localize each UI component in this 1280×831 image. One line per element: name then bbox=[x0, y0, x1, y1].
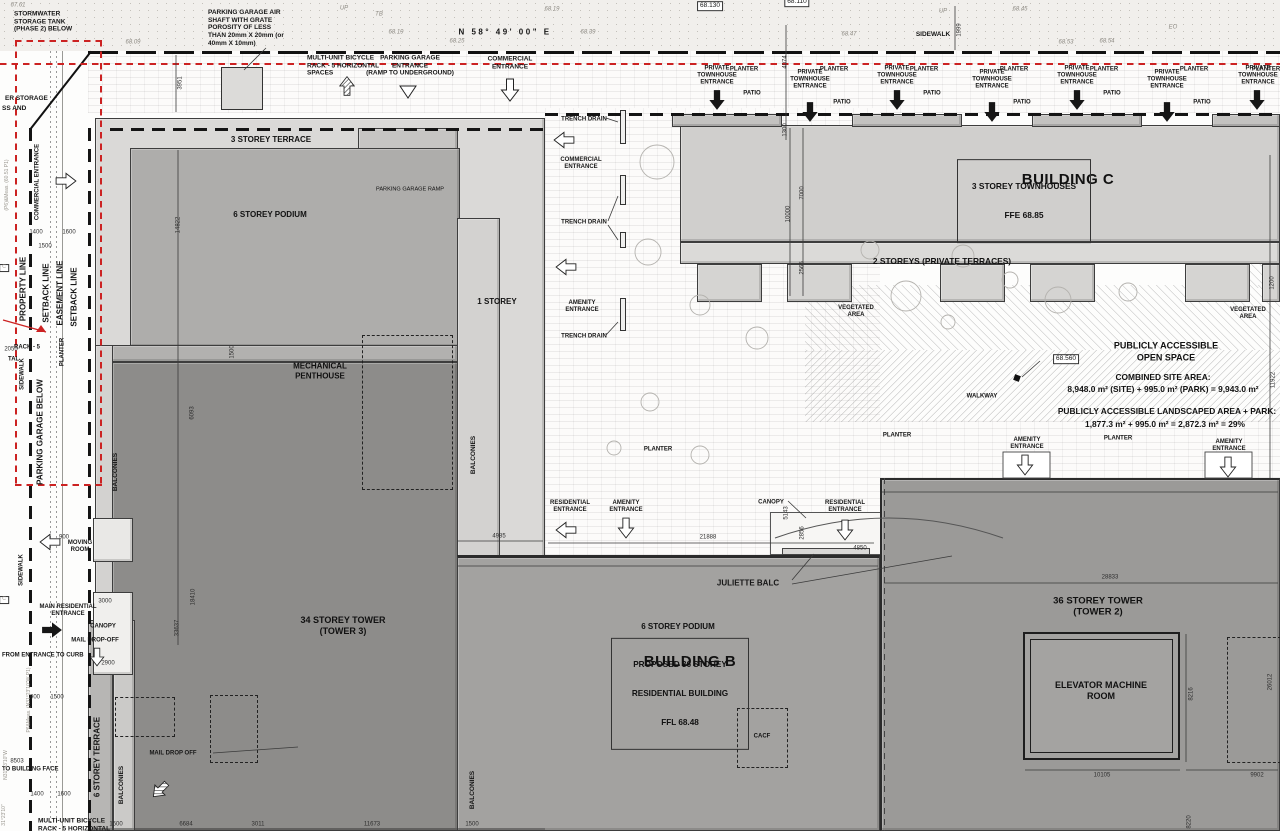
amenity-entrance-label: AMENITY ENTRANCE bbox=[565, 300, 598, 314]
text-fragment: RACK - 5 bbox=[14, 344, 40, 351]
site-plan-drawing: 3 STOREY TERRACE 6 STOREY PODIUM PARKING… bbox=[0, 0, 1280, 831]
boxed-letter: C bbox=[0, 264, 9, 272]
elevation-box: 68.130 bbox=[697, 1, 723, 11]
open-space-line4: 8,948.0 m² (SITE) + 995.0 m² (PARK) = 9,… bbox=[1067, 384, 1258, 394]
open-space-line3: COMBINED SITE AREA: bbox=[1115, 372, 1210, 382]
dim: 1600 bbox=[62, 229, 75, 236]
spot-elevation: 68.25 bbox=[449, 38, 464, 45]
trench-drain-label: TRENCH DRAIN bbox=[561, 219, 607, 226]
residential-entrance-label: RESIDENTIAL ENTRANCE bbox=[550, 500, 590, 514]
main-residential-entrance-label: MAIN RESIDENTIAL ENTRANCE bbox=[40, 604, 97, 618]
planter-label: PLANTER bbox=[820, 66, 848, 73]
spot-elevation: 68.54 bbox=[1099, 38, 1114, 45]
dim: 1400 bbox=[29, 229, 42, 236]
dim: 1500 bbox=[229, 345, 236, 358]
planter-label: PLANTER bbox=[59, 338, 66, 366]
dim: 1400 bbox=[30, 791, 43, 798]
dim: 33637 bbox=[174, 620, 181, 637]
balconies-label: BALCONIES bbox=[470, 436, 478, 474]
tb-label: TB bbox=[375, 11, 383, 18]
dim: 1600 bbox=[57, 791, 70, 798]
planter-label: PLANTER bbox=[730, 66, 758, 73]
garage-entrance-label: PARKING GARAGE ENTRANCE (RAMP TO UNDERGR… bbox=[366, 55, 454, 78]
planter-label: PLANTER bbox=[1000, 66, 1028, 73]
bike-rack-note-bottom: MULTI-UNIT BICYCLE RACK - 5 HORIZONTAL bbox=[38, 817, 110, 831]
building-b-line3: FFL 68.48 bbox=[617, 718, 743, 728]
dim: 3951 bbox=[177, 76, 184, 89]
dim: 1200 bbox=[1269, 276, 1276, 289]
spot-elevation: 68.19 bbox=[544, 6, 559, 13]
mail-drop-off-label: MAIL DROP OFF bbox=[149, 750, 196, 757]
dim: 11922 bbox=[1270, 372, 1277, 388]
trench-drain-label: TRENCH DRAIN bbox=[561, 333, 607, 340]
dim: 5143 bbox=[783, 506, 790, 519]
survey-fragment: P6&Meas. (N31°23'10"W P1) bbox=[27, 667, 33, 732]
tower2-label: 36 STOREY TOWER (TOWER 2) bbox=[1053, 596, 1143, 619]
elevation-box: 68.110 bbox=[784, 0, 809, 7]
text-fragment: SS AND bbox=[2, 105, 26, 113]
sidewalk-label: SIDEWALK bbox=[18, 554, 25, 586]
building-c-band-label: 2 STOREYS (PRIVATE TERRACES) bbox=[873, 256, 1011, 266]
open-space-line6: 1,877.3 m² + 995.0 m² = 2,872.3 m² = 29% bbox=[1085, 419, 1245, 429]
planter-label: PLANTER bbox=[1104, 435, 1132, 442]
building-b-line1: PROPOSED 36 STOREY bbox=[617, 660, 743, 670]
spot-elevation: 68.39 bbox=[580, 29, 595, 36]
spot-elevation: 67.61 bbox=[10, 2, 25, 9]
balconies-label: BALCONIES bbox=[469, 771, 477, 809]
survey-fragment: (P6)&Meas. (60.51 P1) bbox=[5, 159, 11, 210]
dim: 2565 bbox=[799, 261, 806, 274]
spot-elevation: 68.53 bbox=[1058, 39, 1073, 46]
dim: 1500 bbox=[109, 821, 122, 828]
dim: 7000 bbox=[799, 186, 806, 199]
cacf-label: CACF bbox=[754, 733, 771, 740]
penthouse-label: MECHANICAL PENTHOUSE bbox=[293, 361, 347, 380]
survey-fragment: N31°23'10"W bbox=[4, 750, 10, 780]
patio-label: PATIO bbox=[833, 99, 850, 106]
dim: 9902 bbox=[1250, 772, 1263, 779]
walkway-label: WALKWAY bbox=[967, 393, 998, 400]
patio-label: PATIO bbox=[1193, 99, 1210, 106]
terrace3-label: 3 STOREY TERRACE bbox=[231, 135, 311, 145]
dim: 8220 bbox=[1186, 815, 1193, 828]
amenity-entrance-label: AMENITY ENTRANCE bbox=[1010, 437, 1043, 451]
open-space-line5: PUBLICLY ACCESSIBLE LANDSCAPED AREA + PA… bbox=[1058, 406, 1276, 416]
planter-label: PLANTER bbox=[1252, 66, 1280, 73]
patio-label: PATIO bbox=[743, 90, 760, 97]
entrance-to-curb-label: FROM ENTRANCE TO CURB bbox=[2, 652, 84, 659]
easement-line-label: EASEMENT LINE bbox=[55, 261, 64, 326]
dim: 10105 bbox=[1094, 772, 1111, 779]
sidewalk-label: SIDEWALK bbox=[19, 358, 26, 390]
property-line-label: PROPERTY LINE bbox=[18, 257, 27, 321]
dim: 4850 bbox=[853, 545, 866, 552]
commercial-entrance-label: COMMERCIAL ENTRANCE bbox=[488, 55, 533, 70]
terrace6-label: 6 STOREY TERRACE bbox=[92, 717, 101, 797]
spot-elevation: 68.45 bbox=[1012, 6, 1027, 13]
spot-elevation: 68.47 bbox=[841, 31, 856, 38]
planter-label: PLANTER bbox=[910, 66, 938, 73]
patio-label: PATIO bbox=[1013, 99, 1030, 106]
vegetated-area-label: VEGETATED AREA bbox=[838, 305, 874, 319]
planter-label: PLANTER bbox=[644, 446, 672, 453]
building-c-info-box: 3 STOREY TOWNHOUSES FFE 68.85 bbox=[957, 159, 1091, 243]
planter-label: PLANTER bbox=[1180, 66, 1208, 73]
dim: 1500 bbox=[38, 243, 51, 250]
residential-entrance-label: RESIDENTIAL ENTRANCE bbox=[825, 500, 865, 514]
tower3-label: 34 STOREY TOWER (TOWER 3) bbox=[300, 615, 385, 637]
survey-fragment: 31°23'10" bbox=[2, 804, 8, 825]
patio-label: PATIO bbox=[1103, 90, 1120, 97]
dim: 2900 bbox=[101, 660, 114, 667]
dim: 14822 bbox=[175, 217, 182, 234]
dim: 6684 bbox=[179, 821, 192, 828]
dim: 1999 bbox=[956, 23, 963, 36]
building-c-line1: 3 STOREY TOWNHOUSES bbox=[963, 181, 1085, 191]
one-storey-label: 1 STOREY bbox=[477, 297, 516, 307]
dim: 1300 bbox=[782, 123, 789, 136]
dim: 900 bbox=[59, 534, 69, 541]
dim: 4985 bbox=[492, 533, 505, 540]
planter-label: PLANTER bbox=[1090, 66, 1118, 73]
commercial-entrance-mid: COMMERCIAL ENTRANCE bbox=[560, 157, 601, 171]
open-space-line1: PUBLICLY ACCESSIBLE bbox=[1114, 341, 1218, 352]
dim: 3011 bbox=[252, 821, 265, 828]
building-b-line2: RESIDENTIAL BUILDING bbox=[617, 689, 743, 699]
text-fragment: TAL bbox=[8, 356, 19, 363]
balconies-label: BALCONIES bbox=[112, 453, 120, 491]
dim: 1500 bbox=[465, 821, 478, 828]
dim: 11673 bbox=[364, 821, 380, 828]
dim: 8216 bbox=[1188, 687, 1195, 700]
dim: 6093 bbox=[189, 406, 196, 419]
canopy-label: CANOPY bbox=[758, 499, 784, 506]
elevator-machine-room-label: ELEVATOR MACHINE ROOM bbox=[1055, 680, 1147, 702]
setback-line-label: SETBACK LINE bbox=[69, 267, 78, 326]
stormwater-note: STORMWATER STORAGE TANK (PHASE 2) BELOW bbox=[14, 11, 72, 34]
dim: 1500 bbox=[50, 694, 63, 701]
dim: 21888 bbox=[700, 534, 717, 541]
amenity-entrance-label: AMENITY ENTRANCE bbox=[1212, 439, 1245, 453]
balconies-label: BALCONIES bbox=[118, 766, 126, 804]
parking-garage-below-label: PARKING GARAGE BELOW bbox=[35, 379, 44, 485]
dim: 3000 bbox=[98, 598, 111, 605]
patio-label: PATIO bbox=[923, 90, 940, 97]
spot-elevation: 68.09 bbox=[125, 39, 140, 46]
mail-drop-off-label: MAIL DROP-OFF bbox=[71, 637, 119, 644]
dim: 8503 bbox=[10, 758, 23, 765]
building-c-line2: FFE 68.85 bbox=[963, 211, 1085, 221]
building-b-info-box: PROPOSED 36 STOREY RESIDENTIAL BUILDING … bbox=[611, 638, 749, 750]
up-label: UP bbox=[939, 8, 947, 15]
planter-label: PLANTER bbox=[883, 432, 911, 439]
vegetated-area-label: VEGETATED AREA bbox=[1230, 307, 1266, 321]
dim: 4074 bbox=[782, 55, 789, 68]
dim: 2856 bbox=[799, 526, 806, 539]
podium6b-label: 6 STOREY PODIUM bbox=[641, 622, 715, 632]
podium6-label: 6 STOREY PODIUM bbox=[233, 210, 307, 220]
to-building-face-label: TO BUILDING FACE bbox=[2, 766, 59, 773]
air-shaft-note: PARKING GARAGE AIR SHAFT WITH GRATE PORO… bbox=[208, 9, 284, 47]
dim: 10000 bbox=[785, 206, 792, 223]
ramp-label: PARKING GARAGE RAMP bbox=[376, 187, 444, 194]
text-fragment: ER STORAGE bbox=[5, 95, 48, 103]
commercial-entrance-left: COMMERCIAL ENTRANCE bbox=[34, 144, 41, 220]
spot-elevation: 68.19 bbox=[388, 29, 403, 36]
elevation-box: 68.560 bbox=[1053, 354, 1079, 364]
sidewalk-label: SIDEWALK bbox=[916, 31, 950, 39]
open-space-line2: OPEN SPACE bbox=[1137, 353, 1195, 364]
trench-drain-label: TRENCH DRAIN bbox=[561, 116, 607, 123]
setback-line-label: SETBACK LINE bbox=[41, 263, 50, 322]
moving-room-label: MOVING ROOM bbox=[68, 540, 92, 554]
canopy-label: CANOPY bbox=[90, 623, 116, 630]
dim: 26012 bbox=[1267, 674, 1274, 691]
juliette-balcony-label: JULIETTE BALC bbox=[717, 578, 779, 587]
amenity-entrance-label: AMENITY ENTRANCE bbox=[609, 500, 642, 514]
survey-bearing: N 58° 49' 00" E bbox=[458, 27, 551, 36]
up-label: UP bbox=[340, 5, 348, 12]
eo-label: EO bbox=[1169, 24, 1178, 31]
boxed-letter: C bbox=[0, 596, 9, 604]
dim: 28833 bbox=[1102, 574, 1119, 581]
dim: 18410 bbox=[190, 589, 197, 606]
